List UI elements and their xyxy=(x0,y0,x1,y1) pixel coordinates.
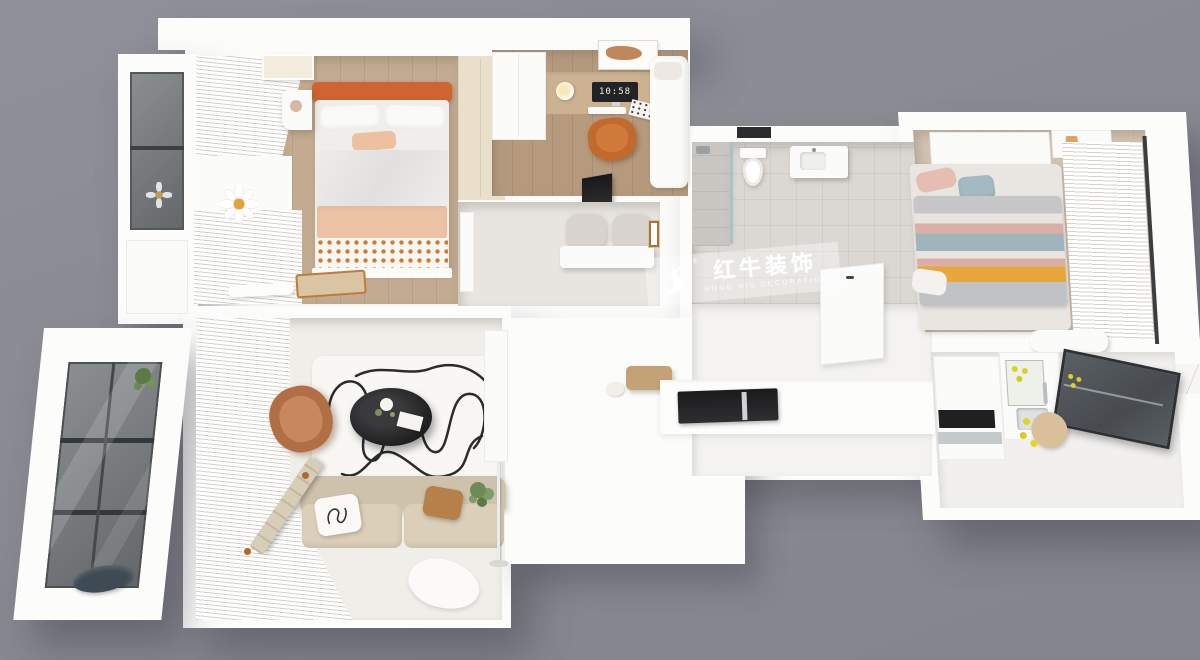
watermark-text: 红牛装饰 HONG NIU DECORATION xyxy=(702,251,829,294)
corridor-cabinet-handle xyxy=(846,276,854,279)
master-bed-checker-blanket xyxy=(316,238,448,268)
study-map-continent xyxy=(606,46,642,60)
fridge-lemons xyxy=(1068,374,1073,379)
shower-glass-panel xyxy=(730,144,733,244)
nightstand-vase xyxy=(290,100,302,112)
study-wardrobe-seam xyxy=(518,54,519,136)
master-bed-pillow-right xyxy=(385,105,446,131)
dining-chair-left xyxy=(566,214,606,246)
study-office-chair-seat xyxy=(596,124,628,152)
monitor-stand xyxy=(612,102,620,106)
entry-bench-pillow xyxy=(606,382,624,396)
master-bed-pillow-left xyxy=(319,104,380,131)
study-daybed-pillow xyxy=(654,62,682,80)
wall-art-frame xyxy=(262,54,314,80)
kitchen-oven-front xyxy=(938,410,995,428)
shower-tile-band xyxy=(692,142,730,246)
living-sideboard xyxy=(484,330,508,462)
monitor-clock-time: 10:58 xyxy=(599,87,631,97)
sofa-pillow-brown xyxy=(422,485,465,521)
lemons-counter xyxy=(1023,418,1030,425)
cooktop xyxy=(677,388,778,423)
bathroom-vent xyxy=(737,127,771,138)
cooktop-rail xyxy=(742,392,748,420)
north-balcony-window-bar xyxy=(130,146,184,150)
desk-lamp xyxy=(556,82,574,100)
master-bed-headboard xyxy=(312,82,452,102)
vanity-tap xyxy=(812,148,816,152)
daisy-decor xyxy=(220,185,258,223)
toilet-tank xyxy=(740,148,766,158)
pillow-squiggle-doodle xyxy=(320,500,354,530)
master-wardrobe-seam xyxy=(480,58,481,198)
dining-wall-art xyxy=(648,220,660,248)
floor-lamp-base xyxy=(489,560,509,567)
master-bench xyxy=(295,270,367,299)
bedroom2-curtains xyxy=(1062,142,1154,340)
lemons-shelf xyxy=(1012,366,1018,372)
master-bed-cushion-peach xyxy=(351,130,396,151)
window-bench-leg xyxy=(244,548,251,555)
monitor-clock: 10:58 xyxy=(592,82,638,102)
shower-head xyxy=(696,146,710,154)
master-bed-duvet xyxy=(316,150,448,212)
vanity-basin xyxy=(800,152,826,170)
table-flower xyxy=(380,398,393,411)
sofa-plant xyxy=(470,482,486,498)
bedroom2-wardrobe xyxy=(929,132,1051,166)
dining-left-door xyxy=(460,212,474,292)
daisy-reflection xyxy=(146,182,172,208)
registered-mark: ® xyxy=(692,258,698,265)
kitchen-dishwasher-steel xyxy=(938,432,1003,444)
window-reflection xyxy=(45,362,163,588)
keyboard xyxy=(588,107,626,114)
bull-icon xyxy=(657,261,694,300)
floorplan-render: 10:58 xyxy=(0,0,1200,660)
master-bed-throw-peach xyxy=(317,206,447,238)
right-wing xyxy=(898,112,1200,520)
kitchen-left-cabinets xyxy=(933,356,1005,460)
north-balcony-cabinet xyxy=(126,240,188,314)
dining-chair-right xyxy=(612,214,652,246)
study-wardrobe xyxy=(492,52,546,140)
south-balcony xyxy=(13,328,192,620)
dining-table xyxy=(560,246,654,268)
